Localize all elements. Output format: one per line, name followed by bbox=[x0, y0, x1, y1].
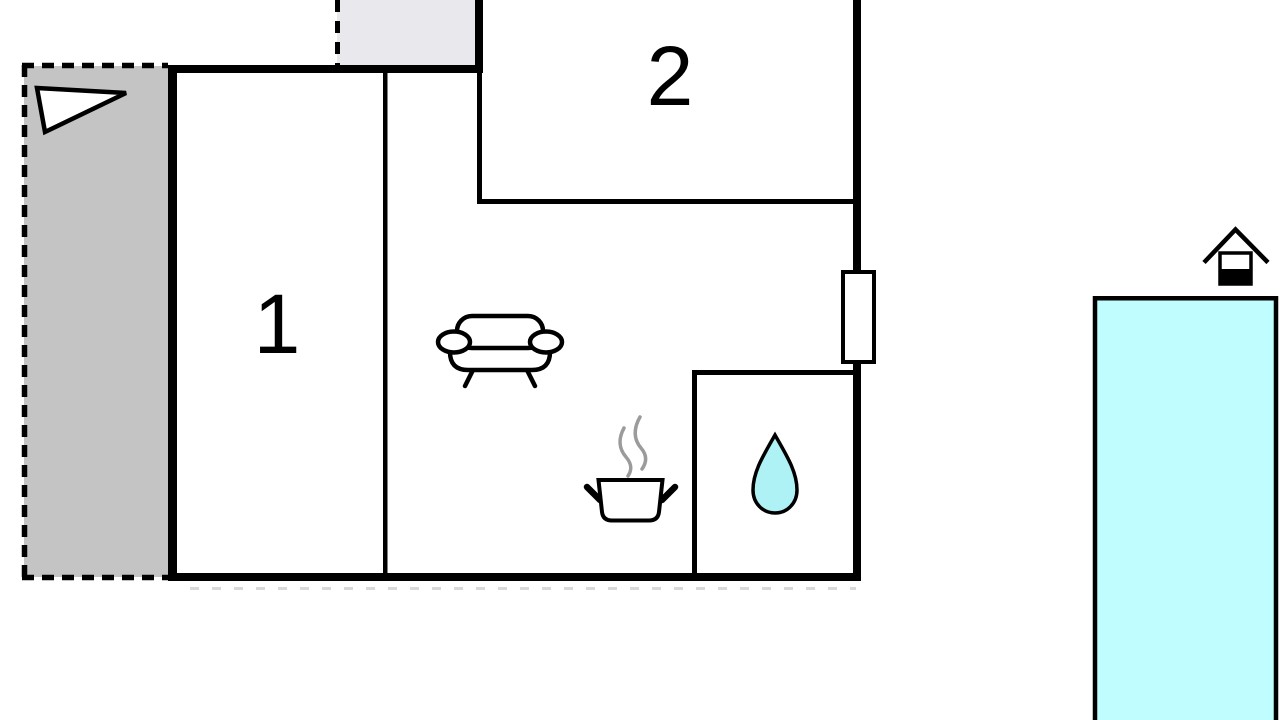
wall-bathroom-left bbox=[692, 370, 697, 577]
wall-bathroom-top bbox=[692, 370, 857, 375]
wall-room1-divider bbox=[383, 70, 388, 577]
wall-exterior-right-lower bbox=[853, 364, 861, 581]
pot-handle-right bbox=[662, 487, 675, 500]
wall-room2-left-thick bbox=[475, 0, 483, 70]
sofa-arm-left bbox=[438, 332, 470, 353]
water-drop-icon bbox=[753, 435, 797, 513]
sofa-leg-right bbox=[527, 370, 535, 386]
cooking-pot-icon bbox=[587, 417, 675, 521]
porch-area bbox=[337, 0, 477, 65]
sofa-icon bbox=[438, 316, 562, 386]
wall-exterior-left bbox=[168, 65, 177, 581]
steam-line-right bbox=[635, 417, 645, 469]
room-1-label: 1 bbox=[254, 277, 301, 371]
wall-room2-bottom bbox=[477, 199, 861, 204]
sofa-arm-right bbox=[530, 332, 562, 353]
steam-line-left bbox=[620, 428, 631, 476]
wall-top-living bbox=[168, 65, 483, 73]
terrace bbox=[22, 65, 168, 578]
terrace-area bbox=[24, 66, 168, 577]
room-2-label: 2 bbox=[647, 29, 694, 123]
wall-exterior-bottom bbox=[168, 573, 861, 581]
pool-house-icon bbox=[1204, 230, 1268, 286]
window-on-right-wall bbox=[843, 272, 874, 362]
pool bbox=[1095, 298, 1276, 720]
porch bbox=[337, 0, 477, 65]
sofa-leg-left bbox=[465, 370, 473, 386]
pot-body bbox=[599, 480, 663, 521]
floor-plan-drawing: 1 2 bbox=[0, 0, 1280, 720]
floor-plan-canvas: 1 2 bbox=[0, 0, 1280, 720]
wall-exterior-right-upper bbox=[853, 0, 861, 270]
wall-room2-left-thin bbox=[477, 70, 482, 204]
